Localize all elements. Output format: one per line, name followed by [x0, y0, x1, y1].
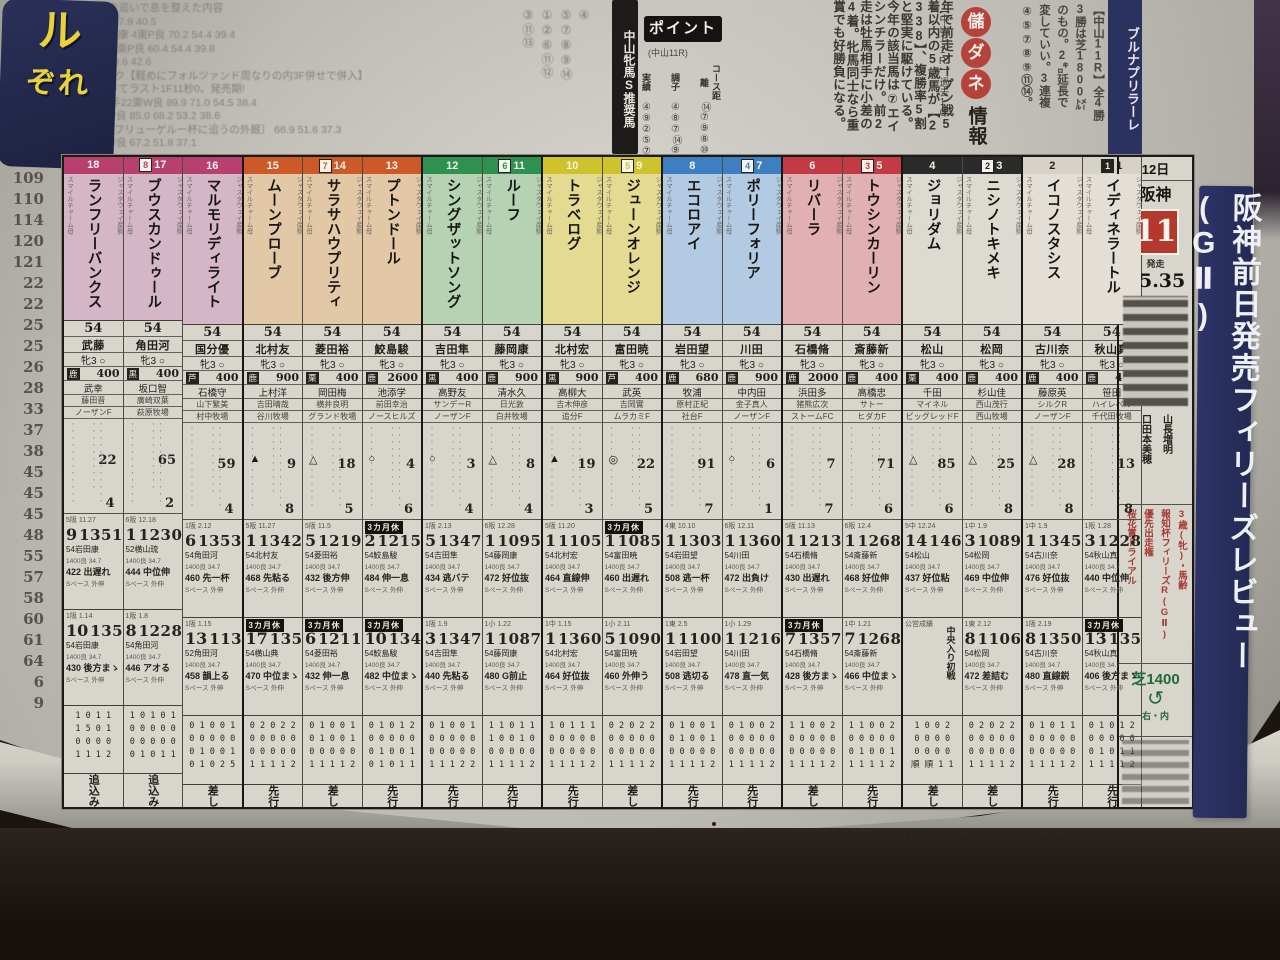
frame-band: 59: [603, 157, 662, 174]
prediction-marks: ・・・・・・・・・・・・・・・・・・・・・・・・・・・・・・・・・・○61: [723, 423, 782, 520]
race-rival: Sペース 外伸: [485, 682, 540, 692]
mark-value-1: 8: [526, 457, 535, 472]
gutter-number: 45: [0, 483, 44, 504]
point-row-values: ④⑧⑦⑭⑨: [669, 102, 681, 142]
record-row: 0 1 0 0 1: [183, 720, 242, 733]
mark-dots: ・・・・・・・・・・・・: [814, 425, 822, 509]
record-row: 0 0 0 0 0: [363, 733, 422, 746]
race-pace: 1400良 34.7: [246, 659, 301, 669]
farm-name: 西山牧場: [963, 411, 1022, 423]
rest-badge: 3カ月休: [365, 521, 403, 534]
horse-column-3: 23ジャスタウェイ産駒ニシノトキメキスマイルチャーム母54松岡牝3 ○鹿400杉…: [963, 157, 1024, 807]
point-rows: 実績④⑨②⑤⑦調子④⑧⑦⑭⑨コース距離⑭⑦⑨⑧⑩: [640, 62, 726, 154]
race-time: 1303: [678, 532, 722, 550]
mark-value-1: 13: [1117, 457, 1135, 472]
mark-dots: ・・・・・・・・・・・・: [486, 425, 494, 509]
race-jockey: 54吉田隼: [425, 648, 480, 659]
tip-article-text: 年で前走オープン戦5着以内の5歳馬が【2338】、複勝率5割と堅実に駆けている。…: [736, 0, 952, 158]
mark-value-2: 4: [105, 496, 114, 511]
race-time: 1347: [438, 630, 482, 648]
race-jockey: 54岩田望: [665, 648, 720, 659]
race-pace: 1400良 34.7: [545, 561, 600, 571]
past-race-1: 6阪 12.111136054川田1400良 34.7472 出負けSペース 外…: [723, 520, 782, 618]
race-time: 1228: [139, 622, 183, 640]
point-row-label: コース距離: [698, 62, 722, 102]
horse-column-18: 18ジャスタウェイ産駒ランフリーバンクススマイルチャーム母54武藤牝3 ○鹿40…: [64, 157, 124, 807]
point-row-label: 実績: [640, 62, 652, 102]
pedigree-text: ジャスタウェイ産駒: [714, 176, 721, 322]
horse-name: ブウスカンドゥール: [145, 178, 160, 322]
trainer-name: 浜田多: [783, 385, 842, 399]
race-jockey: 54角田河: [185, 550, 240, 561]
past-race-2: 1阪 1.1513113952角田河1400良 34.7458 韻上るSペース …: [183, 618, 242, 716]
mark-value-2: 5: [644, 502, 653, 517]
farm-name: ビッグレッドF: [903, 411, 962, 423]
mark-dots: ・・・・・・・・・・・・: [906, 425, 914, 509]
pedigree-text: ジャスタウェイ産駒: [1074, 176, 1081, 322]
prize-money: 400: [1056, 371, 1079, 384]
race-rival: Sペース 外伸: [665, 584, 720, 594]
gutter-number: 120: [0, 231, 44, 252]
pedigree-text: スマイルチャーム母: [65, 176, 72, 322]
frame-number-badge: 5: [621, 159, 634, 173]
sex-age: 牝3 ○: [783, 357, 842, 371]
race-pace: 1400良 34.7: [725, 659, 780, 669]
running-style: 先行: [564, 785, 580, 807]
jockey-name: 古川奈: [1023, 341, 1082, 357]
running-style: 先行: [684, 785, 700, 807]
horse-weight-comment: 464 直線伸: [545, 571, 600, 584]
mark-value-2: 6: [404, 502, 413, 517]
finish-position: 5: [605, 629, 616, 648]
race-jockey: 54古川奈: [1025, 648, 1080, 659]
carry-weight: 54: [244, 325, 303, 341]
race-jockey: 54北村友: [246, 550, 301, 561]
gutter-number: 37: [0, 420, 44, 441]
race-result-line: 51219: [305, 531, 360, 550]
pedigree-text: スマイルチャーム母: [1084, 176, 1091, 322]
past-race-2: 3カ月休1小 2.510134754鮫島駿1400良 34.7482 中位まゝS…: [363, 618, 422, 716]
carry-weight: 54: [903, 325, 962, 341]
horse-name-cell: ジャスタウェイ産駒マルモリディライトスマイルチャーム母: [183, 174, 242, 325]
race-jockey: 54横山典: [246, 648, 301, 659]
race-time: 1087: [498, 630, 542, 648]
record-row: 0 0 0 0 0: [723, 746, 782, 759]
farm-name: 村中牧場: [183, 411, 242, 423]
running-style-cell: 差し: [183, 785, 242, 807]
race-pace: 1400良 34.7: [126, 651, 181, 661]
race-result-line: 61353: [185, 531, 240, 550]
race-pace: 1400良 34.7: [845, 659, 900, 669]
pedigree-text: スマイルチャーム母: [364, 176, 371, 322]
race-pace: 1400良 34.7: [665, 561, 720, 571]
race-time: 1106: [978, 630, 1022, 648]
race-time: 1461: [929, 532, 962, 550]
race-rival: Sペース 外伸: [185, 584, 240, 594]
mark-value-1: 6: [766, 457, 775, 472]
prize-money: 900: [276, 371, 299, 384]
frame-band: 714: [303, 157, 362, 174]
race-time: 1350: [1109, 630, 1142, 648]
race-header: 6阪 12.11: [725, 521, 780, 531]
running-style-cell: 差し: [303, 785, 362, 807]
trainer-name: 坂口智: [124, 381, 183, 395]
gutter-number: 38: [0, 441, 44, 462]
horse-name: エコロアイ: [685, 178, 700, 322]
record-row: 1 1 1 1 2: [723, 759, 782, 772]
race-header: 1阪 2.12: [185, 521, 240, 531]
race-time: 1219: [318, 532, 362, 550]
mark-dots: ・・・・・・・・・・・・: [186, 425, 194, 509]
prize-table-block: [1123, 296, 1188, 406]
race-rival: Sペース 外伸: [246, 584, 301, 594]
mark-value-2: 8: [285, 502, 294, 517]
side-race-title-banner: 阪神前日発売フィリーズレビュー(GⅡ): [1193, 186, 1254, 819]
mark-symbol: ○: [429, 453, 436, 465]
horse-name-cell: ジャスタウェイ産駒プトンドールスマイルチャーム母: [363, 174, 422, 325]
past-race-1: 5阪 11.201110554北村宏1400良 34.7464 直線伸Sペース …: [543, 520, 602, 618]
running-style: 先行: [265, 785, 281, 807]
race-header: 1中 1.9: [965, 521, 1020, 531]
point-row: 実績④⑨②⑤⑦: [640, 62, 665, 154]
horse-name-cell: ジャスタウェイ産駒トラベログスマイルチャーム母: [543, 174, 602, 325]
race-result-line: 11100: [665, 629, 720, 648]
mark-dots: ・・・・・・・・・・・・: [786, 425, 794, 509]
record-row: 順 順 1 1: [903, 759, 962, 772]
horse-weight-comment: 480 G前止: [485, 669, 540, 682]
race-rival: Sペース 外伸: [1025, 584, 1080, 594]
race-jockey: 54斎藤新: [845, 648, 900, 659]
point-row: 調子④⑧⑦⑭⑨: [669, 62, 694, 154]
past-race-2: 1阪 1.93134754吉田隼1400良 34.7440 先粘るSペース 外伸: [423, 618, 482, 716]
point-row: コース距離⑭⑦⑨⑧⑩: [698, 62, 723, 154]
race-pace: 1400良 34.7: [485, 659, 540, 669]
mark-value-1: 22: [98, 453, 116, 468]
mark-value-2: 3: [584, 502, 593, 517]
gutter-number: 114: [0, 210, 44, 231]
sex-age: 牝3 ○: [363, 357, 422, 371]
article-column: シンチラーだけ。前2: [872, 0, 885, 158]
farm-name: ノーザンF: [723, 411, 782, 423]
record-row: 1 1 1 2: [64, 749, 123, 762]
mark-symbol: ○: [729, 453, 736, 465]
race-jockey: 54藤岡康: [485, 648, 540, 659]
pedigree-text: ジャスタウェイ産駒: [175, 176, 182, 322]
info-footer-block: [1122, 740, 1189, 804]
prediction-marks: ・・・・・・・・・・・・・・・・・・・・・・・・・・・・・・・・・・△288: [1023, 423, 1082, 520]
point-row-label: 調子: [669, 62, 681, 102]
past-race-1: 1阪 2.126135354角田河1400良 34.7460 先一杯Sペース 外…: [183, 520, 242, 618]
race-result-line: 11213: [785, 531, 840, 550]
horse-weight-comment: 472 差詰む: [965, 669, 1020, 682]
mark-value-2: 4: [224, 502, 233, 517]
mark-dots: ・・・・・・・・・・・・: [394, 425, 402, 509]
sex-age: 牝3 ○: [543, 357, 602, 371]
horse-name: トウシンカーリン: [864, 178, 879, 322]
record-row: 1 0 1 1: [64, 710, 123, 723]
record-row: 0 0 0 0 0: [124, 723, 183, 736]
prize-money: 400: [156, 367, 179, 380]
race-header: 5阪 11.13: [785, 521, 840, 531]
mark-value-1: 18: [337, 457, 355, 472]
race-time: 1268: [858, 630, 902, 648]
prize-money: 400: [635, 371, 658, 384]
frame-number-badge: 2: [981, 159, 994, 173]
record-row: 1 1 1 1 2: [303, 759, 362, 772]
past-race-2: 公営成績中央入り初戦: [903, 618, 962, 716]
running-style-cell: 先行: [543, 785, 602, 807]
race-result-line: 31347: [425, 629, 480, 648]
moukedane-circle-1: 儲: [961, 7, 991, 37]
race-time: 1350: [1038, 630, 1082, 648]
horse-name: ランフリーバンクス: [86, 178, 101, 322]
race-time: 1230: [139, 526, 183, 544]
horse-name: ジューンオレンジ: [624, 178, 639, 322]
training-line: 直線に伸びてラスト1F11秒0、発売期!: [66, 83, 536, 97]
race-rival: Sペース 外伸: [845, 584, 900, 594]
career-record: 0 1 0 1 10 0 0 0 00 0 0 0 01 1 1 1 2: [1023, 716, 1082, 785]
horse-column-10: 10ジャスタウェイ産駒トラベログスマイルチャーム母54北村宏牝3 ○黒900高柳…: [543, 157, 603, 807]
race-note: 中央入り初戦: [945, 626, 958, 710]
record-row: 0 0 0 0 0: [543, 733, 602, 746]
career-record: 1 0 1 1 10 0 0 0 00 0 0 0 01 1 1 1 2: [543, 716, 602, 785]
jockey-name: 川田: [723, 341, 782, 357]
record-row: 0 0 0 0 0: [1023, 733, 1082, 746]
gutter-number: 58: [0, 588, 44, 609]
mark-dots: ・・・・・・・・・・・・: [366, 425, 374, 509]
mark-dots: ・・・・・・・・・・・・: [606, 425, 614, 509]
race-header: 1小 2.11: [605, 619, 660, 629]
trainer-name: 千田: [903, 385, 962, 399]
race-rival: Sペース 外伸: [1085, 682, 1140, 692]
carry-weight: 54: [543, 325, 602, 341]
running-style: 先行: [744, 785, 760, 807]
horse-weight-comment: 432 後方伸: [305, 571, 360, 584]
horse-weight-comment: 478 直一気: [725, 669, 780, 682]
gutter-number: 9: [0, 693, 44, 714]
race-time: 1347: [438, 532, 482, 550]
mark-dots: ・・・・・・・・・・・・: [127, 421, 135, 505]
frame-number-badge: 3: [861, 159, 874, 173]
race-jockey: 54鮫島駿: [365, 648, 420, 659]
race-jockey: 54菱田裕: [305, 550, 360, 561]
coat-prize-row: 芦400: [183, 371, 242, 385]
record-row: 0 0 0 0 0: [124, 736, 183, 749]
headline-graphic-box: ル ぞれ: [0, 0, 119, 170]
jockey-name: 松山: [903, 341, 962, 357]
race-pace: 1400良 34.7: [1025, 561, 1080, 571]
farm-name: ノーザンF: [423, 411, 482, 423]
frame-number-badge: 8: [139, 158, 152, 172]
past-race-2: 1東 2.128110654松岡1400良 34.7472 差詰むSペース 外伸: [963, 618, 1022, 716]
horse-number: 12: [446, 160, 458, 172]
point-box-title: ポイント: [644, 16, 722, 42]
owner-name: 猪熊広次: [783, 399, 842, 411]
horse-columns: 18ジャスタウェイ産駒ランフリーバンクススマイルチャーム母54武藤牝3 ○鹿40…: [64, 157, 1117, 807]
coat-color: 黒: [426, 372, 439, 384]
training-line: ●ウインピク【軽めにフォルツァンド周なりの内3F併せで併入】: [66, 70, 536, 84]
pedigree-text: ジャスタウェイ産駒: [894, 176, 901, 322]
jockey-name: 斎藤新: [843, 341, 902, 357]
record-row: 0 0 0 0 0: [783, 733, 842, 746]
coat-color: 鹿: [846, 372, 859, 384]
coat-prize-row: 芦400: [603, 371, 662, 385]
frame-number-badge: 7: [319, 159, 332, 173]
frame-band: 35: [843, 157, 902, 174]
mark-dots: ・・・・・・・・・・・・: [426, 425, 434, 509]
farm-name: 社台F: [663, 411, 722, 423]
career-record: 0 1 0 0 10 0 0 0 00 0 0 0 01 1 1 2 2: [423, 716, 482, 785]
mark-value-2: 4: [464, 502, 473, 517]
gutter-number: 110: [0, 189, 44, 210]
running-style: 差し: [924, 785, 940, 807]
race-rival: Sペース 外伸: [126, 674, 181, 684]
jockey-name: 鮫島駿: [363, 341, 422, 357]
race-result-line: 91351: [66, 525, 121, 544]
horse-weight-comment: 440 先粘る: [425, 669, 480, 682]
record-row: 0 1 0 1 2: [363, 720, 422, 733]
record-row: 1 0 1 1 1: [543, 720, 602, 733]
mark-dots: ・・・・・・・・・・・・: [966, 425, 974, 509]
race-header: 1阪 1.14: [66, 611, 121, 621]
race-pace: 1400良 34.7: [185, 561, 240, 571]
pedigree-text: ジャスタウェイ産駒: [354, 176, 361, 322]
horse-column-7: 47ジャスタウェイ産駒ポリーフォリアスマイルチャーム母54川田牝3 ○鹿900中…: [723, 157, 784, 807]
horse-name-cell: ジャスタウェイ産駒リバーラスマイルチャーム母: [783, 174, 842, 325]
mark-dots: ・・・・・・・・・・・・: [306, 425, 314, 509]
carry-weight: 54: [963, 325, 1022, 341]
trainer-name: 牧浦: [663, 385, 722, 399]
rest-badge: 3カ月休: [605, 521, 643, 534]
carry-weight: 54: [843, 325, 902, 341]
farm-name: 白井牧場: [483, 411, 542, 423]
note-column: ④⑤⑦⑧⑨⑪⑭。: [1018, 4, 1034, 156]
race-jockey: 54松山: [905, 550, 960, 561]
mark-value-2: 1: [764, 502, 773, 517]
horse-weight-comment: 484 伸一息: [365, 571, 420, 584]
race-pace: 1400良 34.7: [965, 561, 1020, 571]
mark-dots: ・・・・・・・・・・・・: [754, 425, 762, 509]
record-row: 1 1 1 1 2: [663, 759, 722, 772]
note-column: のもの。2㌔延長で: [1054, 4, 1070, 156]
mark-dots: ・・・・・・・・・・・・: [846, 425, 854, 509]
record-row: 0 0 0 0 0: [183, 733, 242, 746]
horse-name: ニシノトキメキ: [984, 178, 999, 322]
race-result-line: 11105: [545, 531, 600, 550]
point-row-values: ⑭⑦⑨⑧⑩: [698, 102, 710, 142]
coat-color: 鹿: [786, 372, 799, 384]
sex-age: 牝3 ○: [603, 357, 662, 371]
race-result-line: 11230: [126, 525, 181, 544]
record-row: 0 1 0 0 1: [303, 733, 362, 746]
race-time: 1228: [1098, 532, 1142, 550]
coat-prize-row: 黒900: [543, 371, 602, 385]
race-result-line: 31089: [965, 531, 1020, 550]
pedigree-text: スマイルチャーム母: [784, 176, 791, 322]
coat-prize-row: 栗400: [303, 371, 362, 385]
race-result-line: 141461: [905, 531, 960, 550]
race-jockey: 54岩田康: [66, 544, 121, 555]
record-row: 1 0 0 1 0: [483, 733, 542, 746]
past-race-1: 1中 1.93108954松岡1400良 34.7469 中位伸Sペース 外伸: [963, 520, 1022, 618]
record-row: 0 1 0 2 5: [183, 759, 242, 772]
race-result-line: 11268: [845, 531, 900, 550]
coat-color: 鹿: [666, 372, 679, 384]
running-style: 先行: [1044, 785, 1060, 807]
horse-column-13: 13ジャスタウェイ産駒プトンドールスマイルチャーム母54鮫島駿牝3 ○鹿2600…: [363, 157, 424, 807]
mark-dots: ・・・・・・・・・・・・: [514, 425, 522, 509]
race-result-line: 81228: [126, 621, 181, 640]
trainer-name: 上村洋: [244, 385, 303, 399]
training-line: 入厩日併走追いで息を整えた内容: [66, 2, 536, 16]
sex-age: 牝3 ○: [723, 357, 782, 371]
horse-number: 13: [386, 160, 398, 172]
running-style: 差し: [984, 785, 1000, 807]
record-row: 0 1 0 1 1: [363, 759, 422, 772]
pedigree-text: スマイルチャーム母: [484, 176, 491, 322]
record-row: 1 1 1 1 2: [843, 759, 902, 772]
mark-dots: ・・・・・・・・・・・・: [546, 425, 554, 509]
training-line: 〔3歳未勝フリューゲルー杯に追うの外厩〕 66.9 51.6 37.3: [66, 124, 536, 138]
race-pace: 1400良 34.7: [365, 659, 420, 669]
horse-column-6: 6ジャスタウェイ産駒リバーラスマイルチャーム母54石橋脩牝3 ○鹿2000浜田多…: [783, 157, 843, 807]
farm-name: グランド牧場: [303, 411, 362, 423]
running-style: 差し: [804, 785, 820, 807]
race-pace: 1400良 34.7: [185, 659, 240, 669]
horse-name: プトンドール: [384, 178, 399, 322]
owner-name: 藤田晋: [64, 395, 123, 407]
race-rival: Sペース 外伸: [845, 682, 900, 692]
rest-badge: 3カ月休: [785, 619, 823, 632]
sex-age: 牝3 ○: [183, 357, 242, 371]
training-line: 助 手1栗W良 85.0 68.2 53.2 38.6: [66, 110, 536, 124]
race-header: 1小 1.22: [485, 619, 540, 629]
gutter-number: 25: [0, 315, 44, 336]
training-line: (外併) 助 手22栗W良 89.9 71.0 54.5 38.4: [66, 97, 536, 111]
running-style: 先行: [444, 785, 460, 807]
record-row: 0 1 0 0 1: [183, 746, 242, 759]
race-pace: 1400良 34.7: [725, 561, 780, 571]
horse-column-9: 59ジャスタウェイ産駒ジューンオレンジスマイルチャーム母54富田暁牝3 ○芦40…: [603, 157, 664, 807]
race-result-line: 11216: [725, 629, 780, 648]
race-jockey: 54吉田隼: [425, 550, 480, 561]
owner-name: 吉木伸彦: [543, 399, 602, 411]
prediction-marks: ・・・・・・・・・・・・・・・・・・・・・・・・・・・・・・・・・・▲193: [543, 423, 602, 520]
prediction-marks: ・・・・・・・・・・・・・・・・・・・・・・・・・・・・・・・・・・○34: [423, 423, 482, 520]
running-style-cell: 差し: [603, 785, 662, 807]
running-style: 先行: [864, 785, 880, 807]
running-style: 先行: [504, 785, 520, 807]
past-race-1: 3カ月休4阪 10.222121554鮫島駿1400良 34.7484 伸一息S…: [363, 520, 422, 618]
gutter-number: 22: [0, 294, 44, 315]
finish-position: 13: [185, 629, 207, 648]
horse-weight-comment: 508 逃一杯: [665, 571, 720, 584]
mark-value-2: 7: [704, 502, 713, 517]
horse-number: 15: [267, 160, 279, 172]
horse-weight-comment: 444 中位伸: [126, 565, 181, 578]
running-style-cell: 先行: [244, 785, 303, 807]
farm-name: ノーザンF: [1023, 411, 1082, 423]
trainer-name: 岡田梅: [303, 385, 362, 399]
horse-column-15: 15ジャスタウェイ産駒ムーンプローブスマイルチャーム母54北村友牝3 ○鹿900…: [244, 157, 304, 807]
mark-value-2: 5: [344, 502, 353, 517]
record-row: 1 1 0 0 2: [843, 720, 902, 733]
record-row: 1 0 0 2: [903, 720, 962, 733]
race-time: 1359: [270, 630, 303, 648]
record-row: 0 1 0 0 1: [303, 720, 362, 733]
record-row: 0 0 0 0 0: [423, 746, 482, 759]
race-rival: Sペース 外伸: [725, 584, 780, 594]
